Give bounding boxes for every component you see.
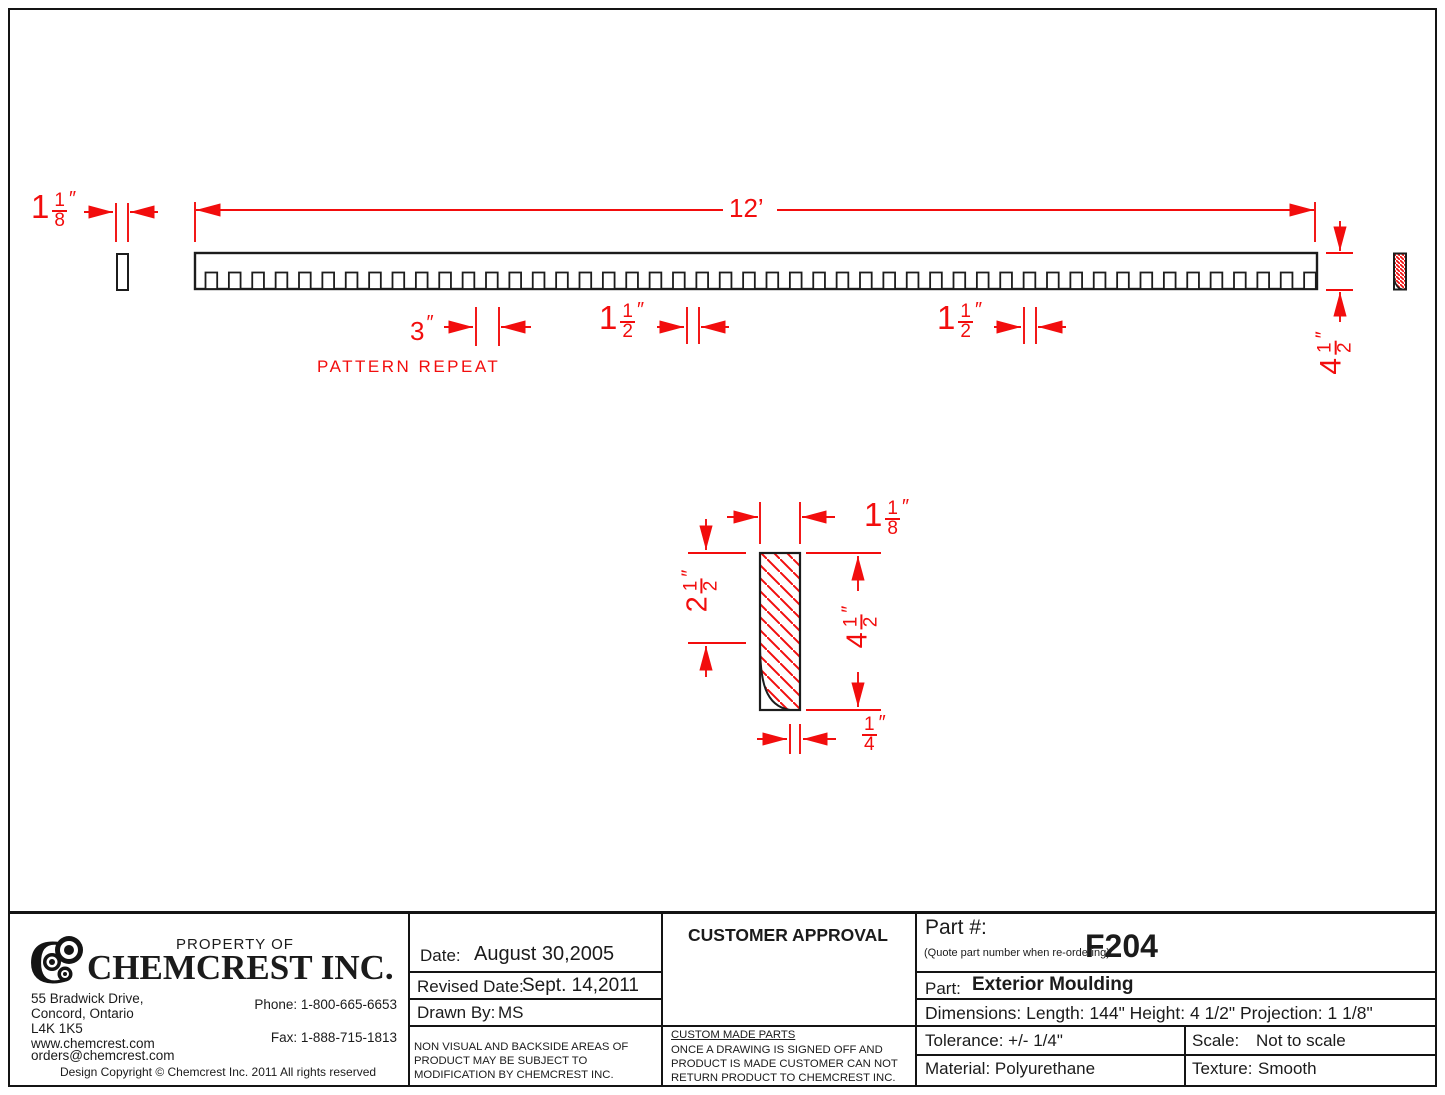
custom-made-parts-title: CUSTOM MADE PARTS — [671, 1029, 795, 1041]
dentil-tooth — [346, 273, 358, 290]
dentil-tooth — [1187, 273, 1199, 290]
dim-dentil-right: 1 12 ″ — [937, 303, 982, 341]
company-name: CHEMCREST INC. — [87, 948, 394, 988]
dentil-tooth — [790, 273, 802, 290]
dim-cs-width: 1 18 ″ — [864, 500, 909, 538]
part-number-value: F204 — [1085, 928, 1158, 965]
dentil-tooth — [276, 273, 288, 290]
dentil-tooth — [369, 273, 381, 290]
dentil-tooth — [860, 273, 872, 290]
chemcrest-logo: C — [28, 931, 92, 991]
texture-label: Texture: — [1192, 1059, 1252, 1079]
dentil-tooth — [1141, 273, 1153, 290]
drawn-by-label: Drawn By: — [417, 1003, 495, 1023]
dentil-tooth — [206, 273, 218, 290]
part-number-label: Part #: — [925, 916, 987, 940]
address-line-1: 55 Bradwick Drive, — [31, 991, 144, 1006]
drawing-sheet: 1 18 ″ 12’ 3 ″ PATTERN REPEAT 1 12 ″ 1 1… — [0, 0, 1445, 1095]
titleblock-top-line — [8, 911, 1437, 914]
company-email: orders@chemcrest.com — [31, 1048, 175, 1063]
company-fax: Fax: 1-888-715-1813 — [225, 1030, 397, 1045]
customer-approval-title: CUSTOMER APPROVAL — [661, 925, 915, 946]
copyright-note: Design Copyright © Chemcrest Inc. 2011 A… — [48, 1065, 388, 1079]
texture-value: Smooth — [1258, 1059, 1317, 1079]
dentil-tooth — [1211, 273, 1223, 290]
dentil-tooth — [930, 273, 942, 290]
dim-cs-total: 4 12 ″ — [836, 598, 886, 656]
dim-overall-length: 12’ — [729, 195, 764, 221]
dim-end-projection: 1 18 ″ — [31, 192, 76, 230]
part-row-line-2 — [915, 998, 1437, 1000]
dentil-tooth — [509, 273, 521, 290]
dentil-tooth — [1234, 273, 1246, 290]
dentil-tooth — [439, 273, 451, 290]
dentil-tooth — [1164, 273, 1176, 290]
dentil-tooth — [1257, 273, 1269, 290]
dentil-tooth — [954, 273, 966, 290]
end-view-left — [117, 254, 128, 290]
dentil-tooth — [486, 273, 498, 290]
dentil-tooth — [813, 273, 825, 290]
revised-date-value: Sept. 14,2011 — [522, 975, 639, 997]
dentil-tooth — [416, 273, 428, 290]
dentil-tooth — [1000, 273, 1012, 290]
date-value: August 30,2005 — [474, 943, 614, 966]
part-row-line-1 — [915, 971, 1437, 973]
dentil-tooth — [673, 273, 685, 290]
dentil-tooth — [1024, 273, 1036, 290]
part-label: Part: — [925, 979, 961, 999]
company-phone: Phone: 1-800-665-6653 — [225, 997, 397, 1012]
dentil-tooth — [743, 273, 755, 290]
drawing-area — [0, 0, 1445, 912]
address-line-3: L4K 1K5 — [31, 1021, 83, 1036]
dentil-tooth — [1047, 273, 1059, 290]
date-label: Date: — [420, 946, 461, 966]
scale-label: Scale: — [1192, 1031, 1239, 1051]
dentil-tooth — [1281, 273, 1293, 290]
cross-section — [760, 553, 800, 710]
dentil-tooth — [650, 273, 662, 290]
dentil-tooth — [1094, 273, 1106, 290]
dentil-tooth — [393, 273, 405, 290]
dentil-tooth — [696, 273, 708, 290]
dentil-tooth — [299, 273, 311, 290]
address-line-2: Concord, Ontario — [31, 1006, 134, 1021]
dim-dentil-left: 1 12 ″ — [599, 303, 644, 341]
pattern-repeat-note: PATTERN REPEAT — [317, 357, 500, 377]
material-value: Material: Polyurethane — [925, 1059, 1095, 1079]
scale-value: Not to scale — [1256, 1031, 1346, 1051]
dim-cs-bottom: 14 ″ — [862, 716, 886, 754]
end-view-right — [1394, 254, 1406, 290]
row-line-3 — [408, 1025, 1437, 1027]
part-row-line-4 — [915, 1054, 1437, 1056]
dentil-tooth — [1117, 273, 1129, 290]
dentil-tooth — [580, 273, 592, 290]
modification-note: NON VISUAL AND BACKSIDE AREAS OF PRODUCT… — [414, 1040, 656, 1082]
dentil-tooth — [720, 273, 732, 290]
dentil-tooth — [229, 273, 241, 290]
dentil-tooth — [767, 273, 779, 290]
custom-made-parts-note: ONCE A DRAWING IS SIGNED OFF AND PRODUCT… — [671, 1043, 909, 1085]
dentil-tooth — [883, 273, 895, 290]
dentil-tooth — [626, 273, 638, 290]
dentil-tooth — [556, 273, 568, 290]
drawn-by-value: MS — [498, 1003, 524, 1023]
part-name-value: Exterior Moulding — [972, 974, 1134, 996]
dim-cs-upper: 2 12 ″ — [676, 562, 726, 620]
cross-section-hatch — [760, 553, 800, 710]
dentil-tooth — [1070, 273, 1082, 290]
dim-end-height: 4 12 ″ — [1306, 322, 1366, 384]
revised-date-label: Revised Date: — [417, 977, 524, 997]
dimensions-row: Dimensions: Length: 144" Height: 4 1/2" … — [925, 1003, 1373, 1024]
dentil-tooth — [837, 273, 849, 290]
tolerance-value: Tolerance: +/- 1/4" — [925, 1031, 1063, 1051]
date-row-line-2 — [409, 998, 661, 1000]
date-row-line-1 — [409, 971, 661, 973]
dentil-tooth — [977, 273, 989, 290]
dentil-tooth — [603, 273, 615, 290]
dim-pattern-repeat: 3 ″ — [410, 316, 434, 346]
dentil-tooth — [1304, 273, 1316, 290]
part-number-subtext: (Quote part number when re-ordering) — [924, 947, 1110, 959]
dentil-tooth — [322, 273, 334, 290]
dentil-tooth — [463, 273, 475, 290]
dentil-tooth — [907, 273, 919, 290]
dentil-tooth — [252, 273, 264, 290]
dentil-tooth — [533, 273, 545, 290]
